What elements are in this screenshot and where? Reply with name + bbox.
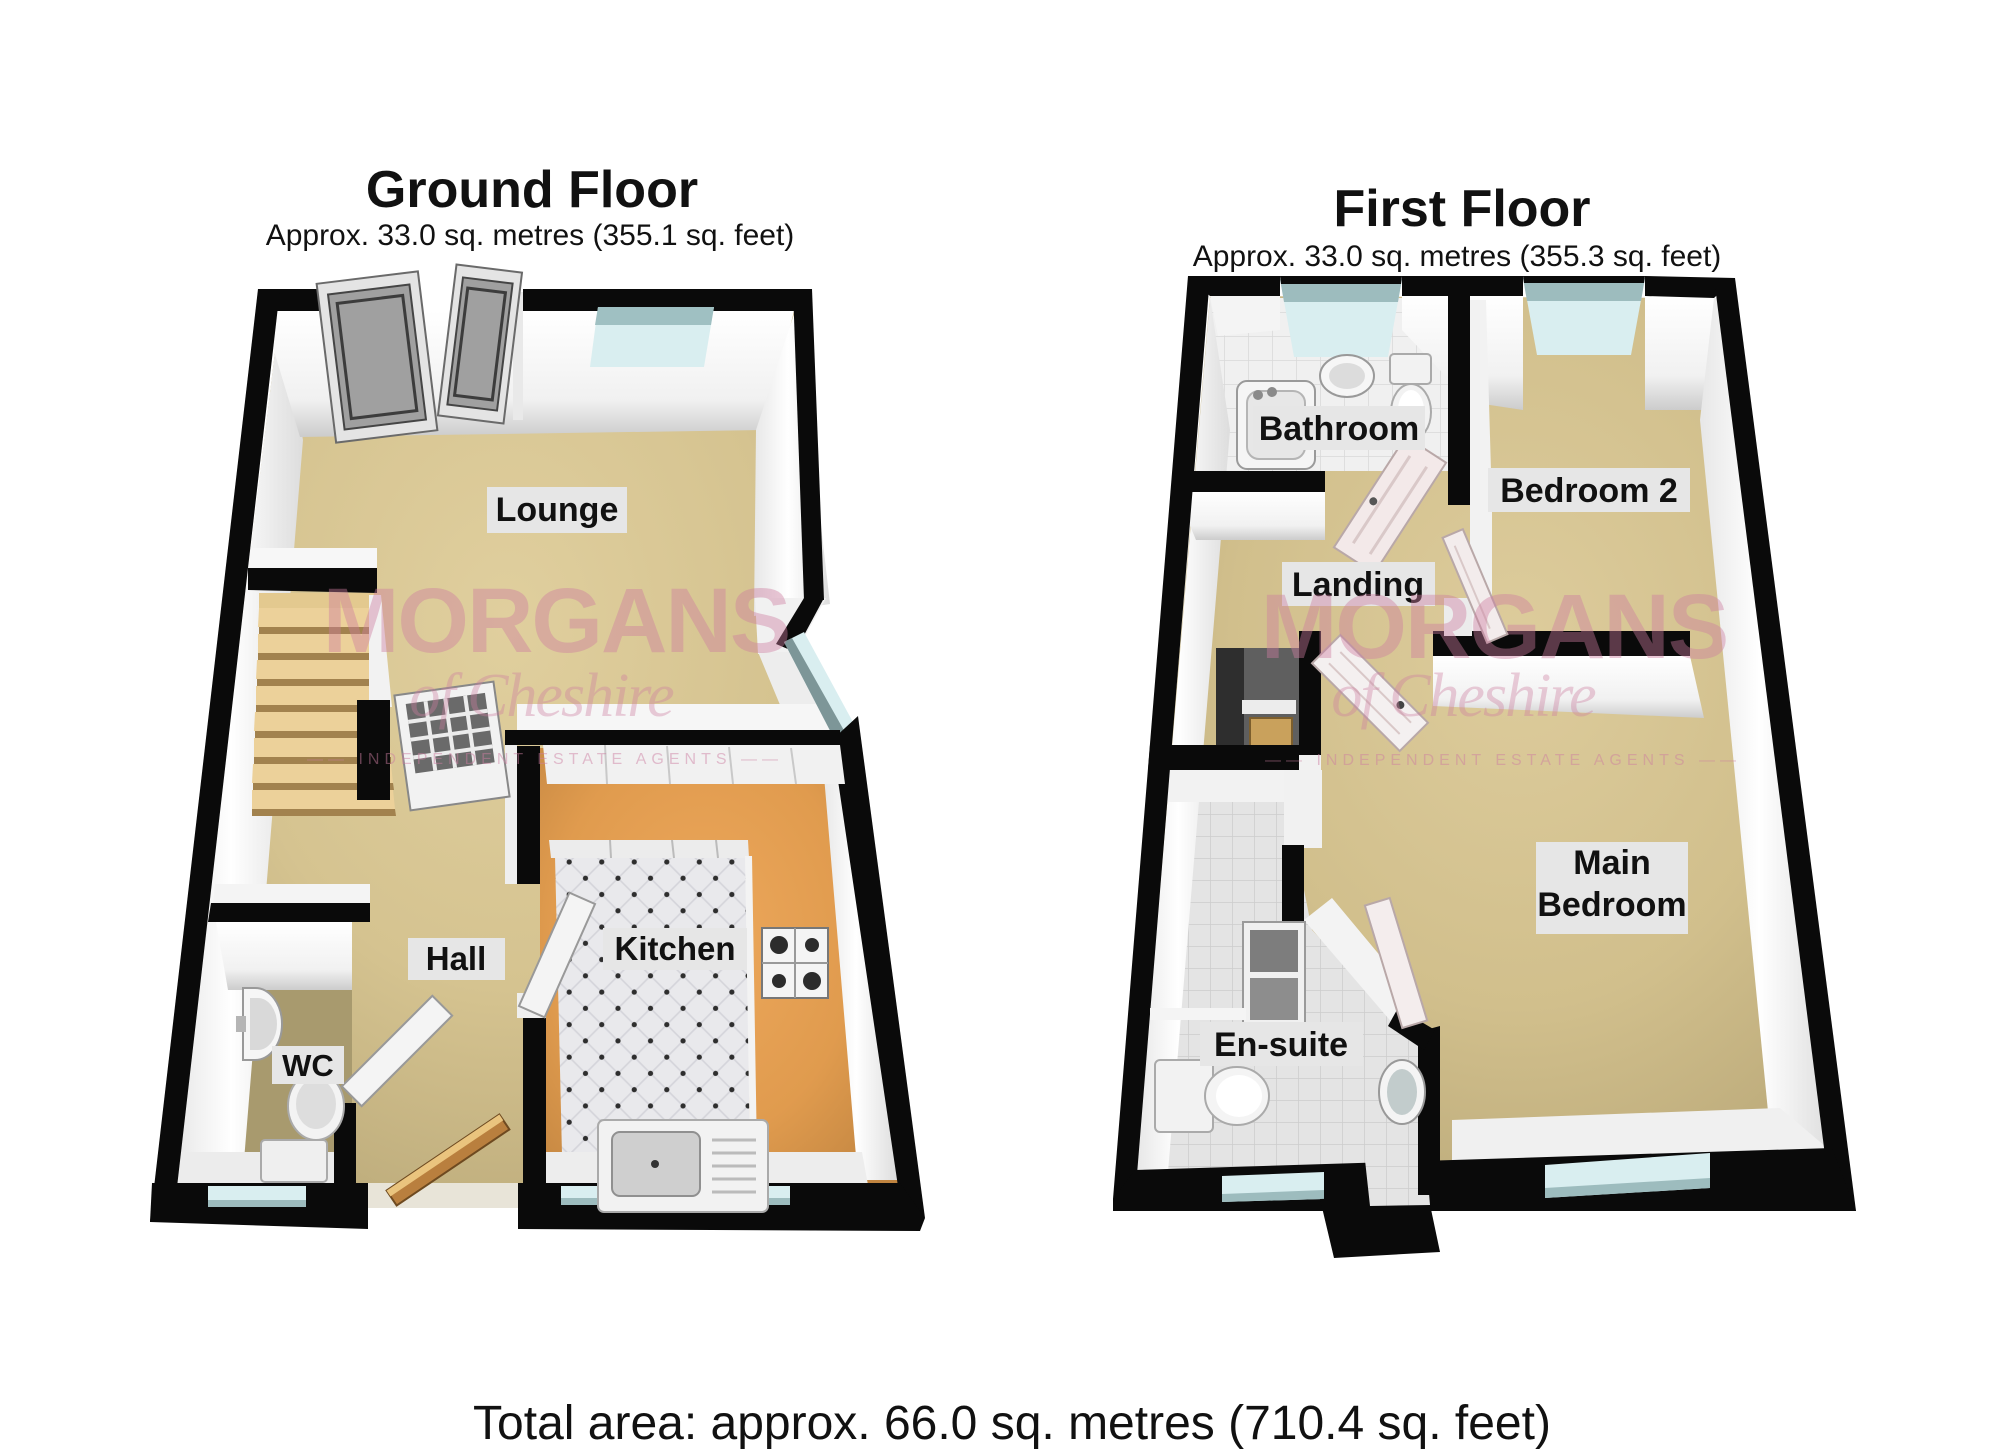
svg-text:Total area: approx. 66.0 sq. m: Total area: approx. 66.0 sq. metres (710…: [473, 1397, 1551, 1450]
svg-text:First Floor: First Floor: [1333, 180, 1590, 238]
svg-text:WC: WC: [282, 1048, 334, 1083]
svg-text:—— INDEPENDENT ESTATE AGENTS —: —— INDEPENDENT ESTATE AGENTS ——: [307, 751, 783, 768]
svg-text:Main: Main: [1573, 844, 1650, 882]
svg-text:En-suite: En-suite: [1214, 1026, 1348, 1064]
svg-text:Approx. 33.0 sq. metres (355.1: Approx. 33.0 sq. metres (355.1 sq. feet): [266, 219, 795, 252]
svg-text:Bathroom: Bathroom: [1259, 410, 1420, 448]
svg-text:Kitchen: Kitchen: [614, 930, 735, 967]
svg-text:Lounge: Lounge: [496, 491, 619, 529]
svg-text:Bedroom: Bedroom: [1537, 886, 1686, 924]
svg-text:Hall: Hall: [426, 940, 487, 977]
svg-text:of Cheshire: of Cheshire: [1331, 662, 1596, 730]
svg-text:Ground Floor: Ground Floor: [366, 161, 698, 219]
svg-text:of Cheshire: of Cheshire: [409, 662, 674, 730]
svg-text:MORGANS: MORGANS: [323, 570, 789, 672]
svg-text:Approx. 33.0 sq. metres (355.3: Approx. 33.0 sq. metres (355.3 sq. feet): [1193, 240, 1722, 273]
svg-text:—— INDEPENDENT ESTATE AGENTS —: —— INDEPENDENT ESTATE AGENTS ——: [1265, 752, 1741, 769]
svg-text:Bedroom 2: Bedroom 2: [1500, 472, 1678, 510]
